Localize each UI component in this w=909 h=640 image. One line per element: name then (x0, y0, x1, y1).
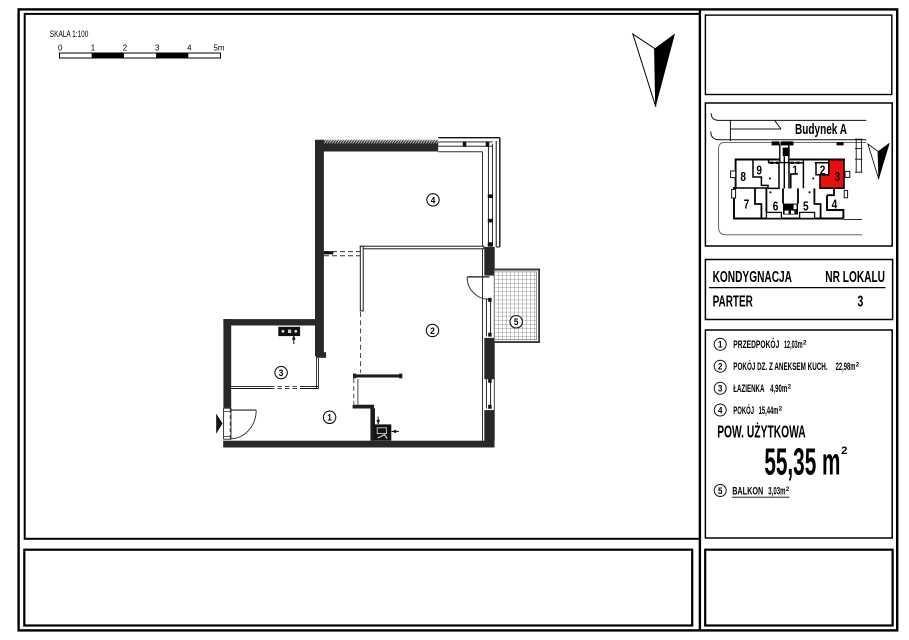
svg-text:5: 5 (718, 485, 722, 496)
svg-text:POKÓJ DZ. Z ANEKSEM KUCH.: POKÓJ DZ. Z ANEKSEM KUCH. (733, 360, 827, 373)
svg-text:6: 6 (773, 199, 779, 214)
svg-text:PRZEDPOKÓJ: PRZEDPOKÓJ (733, 338, 779, 351)
svg-text:POW. UŻYTKOWA: POW. UŻYTKOWA (717, 422, 806, 442)
svg-text:NR LOKALU: NR LOKALU (825, 269, 885, 286)
svg-text:2: 2 (820, 162, 826, 177)
svg-text:3: 3 (835, 169, 841, 184)
svg-text:9: 9 (756, 162, 762, 177)
svg-text:4: 4 (187, 44, 192, 53)
svg-text:22,98m: 22,98m (836, 361, 856, 373)
svg-text:2: 2 (718, 361, 722, 372)
svg-text:SKALA 1:100: SKALA 1:100 (50, 29, 89, 39)
svg-text:3: 3 (858, 293, 864, 310)
svg-text:Budynek A: Budynek A (795, 122, 847, 138)
svg-text:8: 8 (740, 169, 746, 184)
svg-text:POKÓJ: POKÓJ (733, 404, 754, 417)
svg-text:5: 5 (803, 199, 809, 214)
svg-text:2: 2 (841, 445, 847, 457)
svg-text:12,03m: 12,03m (784, 339, 803, 351)
svg-text:5m: 5m (214, 44, 225, 53)
svg-text:2: 2 (430, 326, 435, 337)
svg-text:0: 0 (58, 44, 63, 53)
svg-text:3: 3 (155, 44, 159, 53)
svg-text:55,35 m: 55,35 m (764, 441, 840, 483)
svg-text:1: 1 (718, 339, 722, 350)
svg-text:2: 2 (123, 44, 127, 53)
svg-text:7: 7 (744, 197, 750, 212)
svg-text:1: 1 (91, 44, 95, 53)
svg-text:4: 4 (718, 404, 723, 415)
svg-text:KONDYGNACJA: KONDYGNACJA (713, 269, 792, 286)
svg-text:4: 4 (431, 195, 436, 206)
svg-text:3: 3 (718, 383, 722, 394)
svg-text:3,03m: 3,03m (768, 486, 785, 498)
svg-text:PARTER: PARTER (713, 293, 754, 310)
svg-text:BALKON: BALKON (732, 486, 763, 498)
svg-text:ŁAZIENKA: ŁAZIENKA (733, 383, 764, 395)
svg-text:15,44m: 15,44m (759, 405, 779, 417)
svg-text:4: 4 (832, 197, 838, 212)
svg-text:3: 3 (279, 368, 284, 379)
svg-text:4,90m: 4,90m (770, 383, 787, 395)
svg-text:5: 5 (514, 317, 519, 328)
svg-text:1: 1 (792, 162, 798, 177)
svg-text:1: 1 (327, 413, 332, 424)
